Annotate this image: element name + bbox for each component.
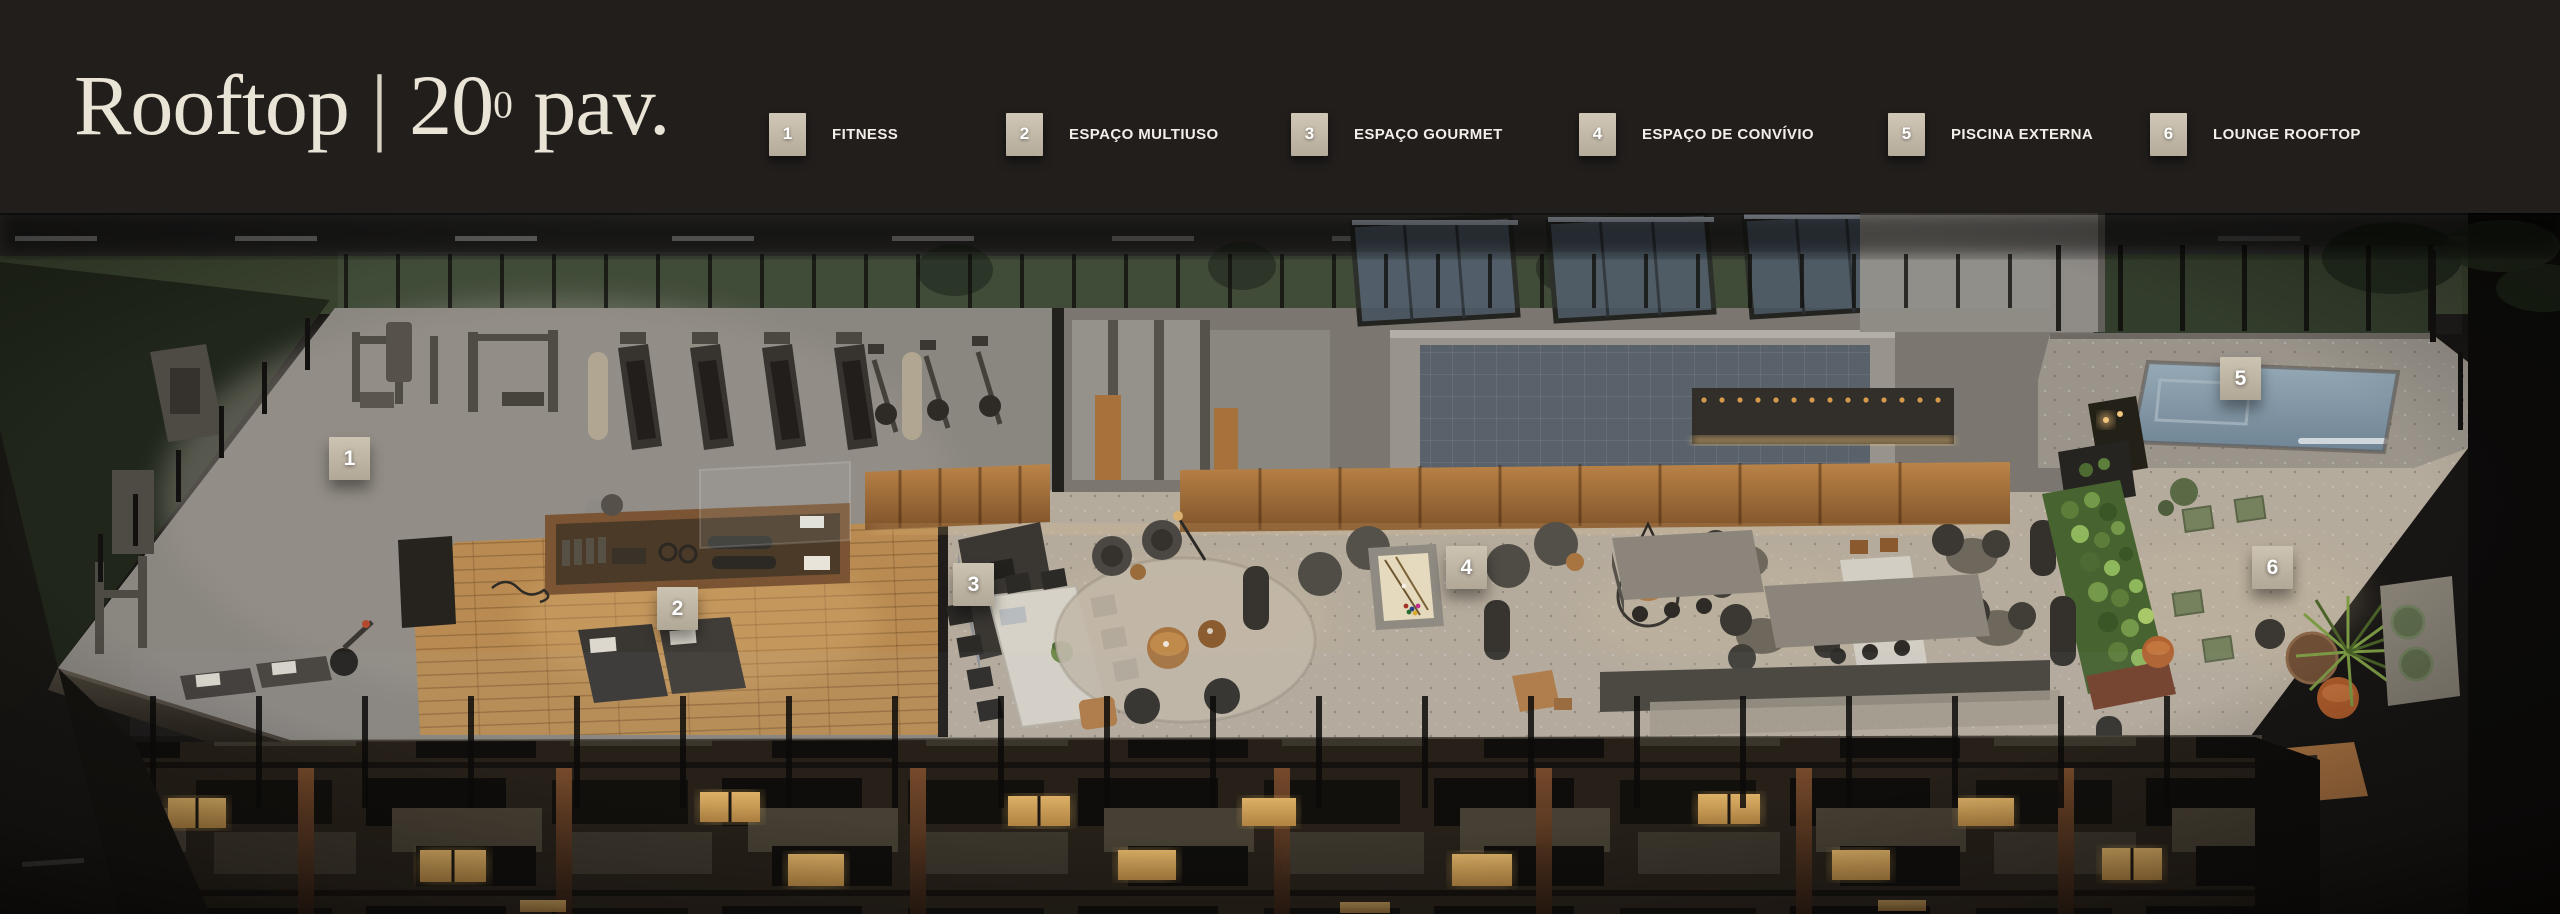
title-floor-ordinal: 0 — [493, 82, 513, 126]
legend-number-badge: 6 — [2150, 113, 2187, 156]
plan-marker-4: 4 — [1446, 546, 1487, 589]
header-bar: Rooftop|200 pav. 1 FITNESS 2 ESPAÇO MULT… — [0, 0, 2560, 213]
legend-number-badge: 1 — [769, 113, 806, 156]
legend-number-badge: 2 — [1006, 113, 1043, 156]
plan-marker-6: 6 — [2252, 546, 2293, 589]
title-floor-suffix: pav. — [533, 57, 669, 153]
plan-marker-5: 5 — [2220, 357, 2261, 400]
title-floor: 200 pav. — [409, 57, 669, 153]
legend-item-lounge-rooftop: 6 LOUNGE ROOFTOP — [2150, 112, 2361, 156]
page-title: Rooftop|200 pav. — [74, 58, 670, 153]
title-floor-number: 20 — [409, 57, 493, 153]
legend-number-badge: 5 — [1888, 113, 1925, 156]
legend-label: LOUNGE ROOFTOP — [2213, 126, 2361, 143]
plan-marker-3: 3 — [953, 563, 994, 606]
legend-number-badge: 4 — [1579, 113, 1616, 156]
plan-marker-1: 1 — [329, 437, 370, 480]
legend-item-piscina-externa: 5 PISCINA EXTERNA — [1888, 112, 2093, 156]
legend-item-espaco-de-convivio: 4 ESPAÇO DE CONVÍVIO — [1579, 112, 1814, 156]
vignette — [0, 213, 2560, 914]
plan-marker-2: 2 — [657, 587, 698, 630]
title-separator: | — [371, 57, 387, 153]
legend-label: PISCINA EXTERNA — [1951, 126, 2093, 143]
legend-number-badge: 3 — [1291, 113, 1328, 156]
floorplan-slide: Rooftop|200 pav. 1 FITNESS 2 ESPAÇO MULT… — [0, 0, 2560, 914]
legend-label: ESPAÇO DE CONVÍVIO — [1642, 126, 1814, 143]
legend-label: FITNESS — [832, 126, 898, 143]
title-project: Rooftop — [74, 57, 349, 153]
legend-item-espaco-gourmet: 3 ESPAÇO GOURMET — [1291, 112, 1503, 156]
legend-label: ESPAÇO GOURMET — [1354, 126, 1503, 143]
legend-item-fitness: 1 FITNESS — [769, 112, 898, 156]
legend-label: ESPAÇO MULTIUSO — [1069, 126, 1219, 143]
legend-item-espaco-multiuso: 2 ESPAÇO MULTIUSO — [1006, 112, 1219, 156]
